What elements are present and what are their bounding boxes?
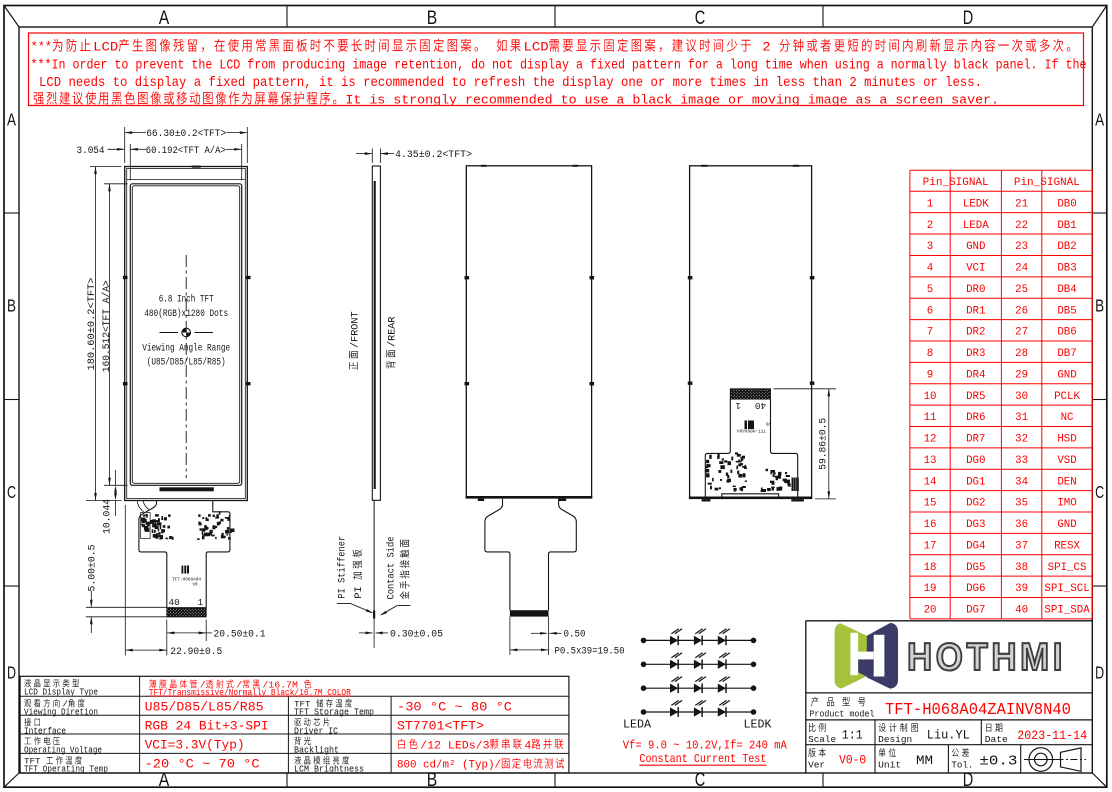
- svg-text:DB0: DB0: [1057, 198, 1076, 210]
- svg-text:DB2: DB2: [1057, 241, 1076, 253]
- svg-text:480(RGB)x1280 Dots: 480(RGB)x1280 Dots: [144, 308, 228, 319]
- svg-text:/REAR: /REAR: [387, 316, 398, 347]
- svg-text:Ver: Ver: [808, 759, 825, 770]
- svg-text:DG6: DG6: [966, 583, 985, 595]
- svg-text:27: 27: [1015, 327, 1028, 339]
- svg-text:22: 22: [1015, 220, 1028, 232]
- svg-text:25: 25: [1015, 284, 1028, 296]
- svg-text:12: 12: [924, 434, 937, 446]
- svg-text:RGB 24 Bit+3-SPI: RGB 24 Bit+3-SPI: [145, 720, 269, 734]
- svg-text:10: 10: [924, 391, 937, 403]
- svg-text:29: 29: [1015, 369, 1028, 381]
- svg-text:VCI: VCI: [966, 263, 985, 275]
- svg-text:9: 9: [927, 369, 933, 381]
- svg-text:Operating Voltage: Operating Voltage: [24, 745, 102, 755]
- svg-text:Unit: Unit: [878, 759, 901, 770]
- svg-text:1: 1: [735, 400, 741, 411]
- svg-text:±0.3: ±0.3: [979, 753, 1017, 769]
- svg-text:23: 23: [1015, 241, 1028, 253]
- svg-text:Liu.YL: Liu.YL: [927, 727, 970, 742]
- svg-text:D: D: [7, 663, 16, 683]
- svg-text:Design: Design: [878, 734, 912, 745]
- svg-text:DG1: DG1: [966, 476, 985, 488]
- svg-text:1: 1: [927, 198, 933, 210]
- svg-text:DR0: DR0: [966, 284, 985, 296]
- svg-text:DR7: DR7: [966, 434, 985, 446]
- svg-text:DR5: DR5: [966, 391, 985, 403]
- svg-text:DR2: DR2: [966, 327, 985, 339]
- svg-text:Viewing Diretion: Viewing Diretion: [24, 708, 98, 718]
- svg-text:10.044: 10.044: [102, 499, 114, 534]
- svg-text:DB4: DB4: [1057, 284, 1076, 296]
- svg-text:LEDK: LEDK: [744, 719, 772, 732]
- svg-text:LCD Display Type: LCD Display Type: [24, 688, 98, 698]
- svg-text:D: D: [963, 770, 974, 791]
- svg-text:C: C: [7, 482, 16, 502]
- svg-text:0.50: 0.50: [564, 629, 586, 641]
- svg-text:A: A: [7, 109, 16, 129]
- svg-text:35: 35: [1015, 498, 1028, 510]
- svg-text:DB3: DB3: [1057, 263, 1076, 275]
- svg-text:Backlight: Backlight: [294, 745, 339, 755]
- svg-text:20: 20: [924, 605, 937, 617]
- svg-text:B: B: [427, 8, 438, 29]
- svg-text:3: 3: [927, 241, 933, 253]
- svg-text:13: 13: [924, 455, 937, 467]
- svg-text:GND: GND: [966, 241, 985, 253]
- svg-text:DG3: DG3: [966, 519, 985, 531]
- svg-text:DR6: DR6: [966, 412, 985, 424]
- svg-text:39: 39: [1015, 583, 1028, 595]
- svg-text:(U85/D85/L85/R85): (U85/D85/L85/R85): [147, 357, 226, 368]
- svg-text:38: 38: [1015, 562, 1028, 574]
- svg-text:800 cd/m² (Typ)/: 800 cd/m² (Typ)/: [397, 760, 501, 772]
- svg-text:60.192<TFT A/A>: 60.192<TFT A/A>: [146, 145, 226, 157]
- svg-text:Viewing Angle Range: Viewing Angle Range: [142, 343, 230, 354]
- svg-text:21: 21: [1015, 198, 1028, 210]
- svg-text:A: A: [159, 8, 170, 29]
- svg-text:LCD: LCD: [523, 40, 548, 55]
- svg-text:GND: GND: [1057, 369, 1076, 381]
- svg-text:B: B: [1095, 296, 1104, 316]
- svg-text:19: 19: [924, 583, 937, 595]
- svg-text:36: 36: [1015, 519, 1028, 531]
- svg-text:22.90±0.5: 22.90±0.5: [170, 646, 222, 658]
- svg-text:LCD needs to display a fixed p: LCD needs to display a fixed pattern, it…: [39, 75, 982, 91]
- svg-text:Interface: Interface: [24, 727, 66, 737]
- svg-text:MM: MM: [916, 753, 933, 768]
- svg-text:7: 7: [927, 327, 933, 339]
- svg-text:P0.5x39=19.50: P0.5x39=19.50: [555, 645, 625, 657]
- svg-text:DEN: DEN: [1057, 476, 1076, 488]
- svg-text:4: 4: [927, 263, 933, 275]
- svg-text:LEDA: LEDA: [623, 719, 651, 732]
- svg-text:DG0: DG0: [966, 455, 985, 467]
- svg-text:TFT/Transmissive/Normally Blac: TFT/Transmissive/Normally Black/16.7M CO…: [149, 688, 352, 698]
- svg-text:DG5: DG5: [966, 562, 985, 574]
- svg-text:DB6: DB6: [1057, 327, 1076, 339]
- svg-text:4: 4: [524, 740, 531, 752]
- svg-text:RESX: RESX: [1054, 540, 1080, 552]
- svg-text:TFT-H068A04ZAINV8N40: TFT-H068A04ZAINV8N40: [885, 700, 1071, 719]
- svg-text:DB5: DB5: [1057, 305, 1076, 317]
- svg-text:5.00±0.5: 5.00±0.5: [87, 545, 99, 592]
- svg-text:3.054: 3.054: [77, 145, 105, 157]
- svg-text:30: 30: [1015, 391, 1028, 403]
- svg-text:66.30±0.2<TFT>: 66.30±0.2<TFT>: [146, 128, 226, 140]
- svg-text:TFT-H068A04: TFT-H068A04: [172, 578, 201, 583]
- svg-text:***In order to prevent the LCD: ***In order to prevent the LCD from prod…: [31, 58, 1087, 74]
- svg-text:LCM Brightness: LCM Brightness: [294, 765, 364, 775]
- svg-text:DB1: DB1: [1057, 220, 1076, 232]
- svg-text:C: C: [695, 770, 706, 791]
- svg-text:1:1: 1:1: [842, 727, 863, 742]
- svg-text:It is strongly recommended to: It is strongly recommended to use a blac…: [345, 92, 999, 107]
- svg-text:0.30±0.05: 0.30±0.05: [390, 628, 443, 640]
- svg-text:/FRONT: /FRONT: [349, 311, 360, 348]
- svg-text:C: C: [695, 8, 706, 29]
- svg-text:Date: Date: [985, 734, 1008, 745]
- svg-text:U85/D85/L85/R85: U85/D85/L85/R85: [145, 701, 264, 715]
- svg-text:28: 28: [1015, 348, 1028, 360]
- svg-text:V0-0: V0-0: [839, 752, 866, 767]
- svg-text:-20 °C ~ 70 °C: -20 °C ~ 70 °C: [145, 758, 260, 772]
- svg-text:DR1: DR1: [966, 305, 985, 317]
- svg-text:D: D: [1095, 663, 1104, 683]
- svg-text:Product model: Product model: [809, 708, 874, 719]
- svg-text:DG4: DG4: [966, 540, 985, 552]
- svg-text:DR3: DR3: [966, 348, 985, 360]
- svg-text:GND: GND: [1057, 519, 1076, 531]
- svg-text:Tol.: Tol.: [951, 759, 973, 770]
- svg-text:NC: NC: [1061, 412, 1074, 424]
- svg-text:20.50±0.1: 20.50±0.1: [214, 629, 266, 641]
- svg-text:HSD: HSD: [1057, 434, 1076, 446]
- svg-text:SPI_CS: SPI_CS: [1048, 562, 1087, 574]
- svg-text:18: 18: [924, 562, 937, 574]
- svg-text:PI Stiffener: PI Stiffener: [337, 536, 349, 599]
- svg-text:26: 26: [1015, 305, 1028, 317]
- svg-text:DB7: DB7: [1057, 348, 1076, 360]
- svg-text:Driver IC: Driver IC: [294, 727, 338, 737]
- svg-text:17: 17: [924, 540, 937, 552]
- svg-text:160.512<TFT A/A>: 160.512<TFT A/A>: [101, 280, 113, 372]
- svg-text:D: D: [963, 8, 974, 29]
- svg-text:40: 40: [1015, 605, 1028, 617]
- svg-text:2: 2: [927, 220, 933, 232]
- svg-text:34: 34: [1015, 476, 1028, 488]
- svg-text:37: 37: [1015, 540, 1028, 552]
- svg-text:LEDA: LEDA: [963, 220, 989, 232]
- svg-text:40: 40: [169, 597, 180, 608]
- svg-text:A: A: [1095, 109, 1104, 129]
- svg-text:5: 5: [927, 284, 933, 296]
- svg-text:16: 16: [924, 519, 937, 531]
- svg-text:14: 14: [924, 476, 937, 488]
- svg-text:59.86±0.5: 59.86±0.5: [817, 418, 829, 470]
- svg-text:LCD: LCD: [93, 40, 118, 55]
- svg-text:4.35±0.2<TFT>: 4.35±0.2<TFT>: [395, 149, 472, 161]
- svg-text:SPI_SCL: SPI_SCL: [1044, 583, 1089, 595]
- svg-text:LEDK: LEDK: [963, 198, 989, 210]
- svg-text:2: 2: [754, 40, 779, 55]
- svg-text:2023-11-14: 2023-11-14: [1017, 728, 1087, 743]
- svg-text:VSD: VSD: [1057, 455, 1076, 467]
- svg-text:Vf= 9.0 ~ 10.2V,If= 240 mA: Vf= 9.0 ~ 10.2V,If= 240 mA: [623, 738, 788, 752]
- svg-text:TFT Storage Temp: TFT Storage Temp: [294, 708, 374, 718]
- svg-text:DG7: DG7: [966, 605, 985, 617]
- svg-text:180.60±0.2<TFT>: 180.60±0.2<TFT>: [86, 278, 98, 371]
- svg-text:Constant Current Test: Constant Current Test: [639, 752, 766, 766]
- svg-text:IMO: IMO: [1057, 498, 1076, 510]
- svg-text:DG2: DG2: [966, 498, 985, 510]
- svg-text:V0: V0: [193, 584, 199, 588]
- svg-text:6.8 Inch TFT: 6.8 Inch TFT: [159, 294, 214, 305]
- svg-text:ST7701<TFT>: ST7701<TFT>: [397, 720, 484, 734]
- svg-text:-30 °C ~ 80 °C: -30 °C ~ 80 °C: [397, 701, 512, 715]
- svg-text:24: 24: [1015, 263, 1028, 275]
- svg-text:C: C: [1095, 482, 1104, 502]
- svg-text:PI: PI: [353, 580, 364, 599]
- svg-text:1: 1: [198, 597, 204, 608]
- svg-text:V0: V0: [765, 421, 771, 425]
- svg-text:6: 6: [927, 305, 933, 317]
- svg-text:/12 LEDs/3: /12 LEDs/3: [420, 740, 489, 752]
- svg-text:TFT Operating Temp: TFT Operating Temp: [24, 765, 108, 775]
- svg-text:15: 15: [924, 498, 937, 510]
- svg-text:SPI_SDA: SPI_SDA: [1044, 605, 1090, 617]
- svg-text:32: 32: [1015, 434, 1028, 446]
- svg-text:Pin_SIGNAL: Pin_SIGNAL: [1014, 177, 1080, 189]
- svg-text:33: 33: [1015, 455, 1028, 467]
- svg-text:DR4: DR4: [966, 369, 985, 381]
- svg-text:***: ***: [31, 40, 53, 55]
- svg-text:Scale: Scale: [808, 734, 836, 745]
- svg-text:31: 31: [1015, 412, 1028, 424]
- svg-text:TFT-H068A04: TFT-H068A04: [737, 428, 766, 433]
- svg-text:8: 8: [927, 348, 933, 360]
- svg-text:Pin_SIGNAL: Pin_SIGNAL: [923, 177, 989, 189]
- svg-text:VCI=3.3V(Typ): VCI=3.3V(Typ): [145, 738, 245, 752]
- svg-text:B: B: [7, 296, 16, 316]
- svg-text:40: 40: [755, 400, 766, 411]
- svg-text:PCLK: PCLK: [1054, 391, 1080, 403]
- svg-text:11: 11: [924, 412, 937, 424]
- svg-text:Contact Side: Contact Side: [386, 537, 398, 600]
- svg-text:HOTHMI: HOTHMI: [907, 636, 1066, 679]
